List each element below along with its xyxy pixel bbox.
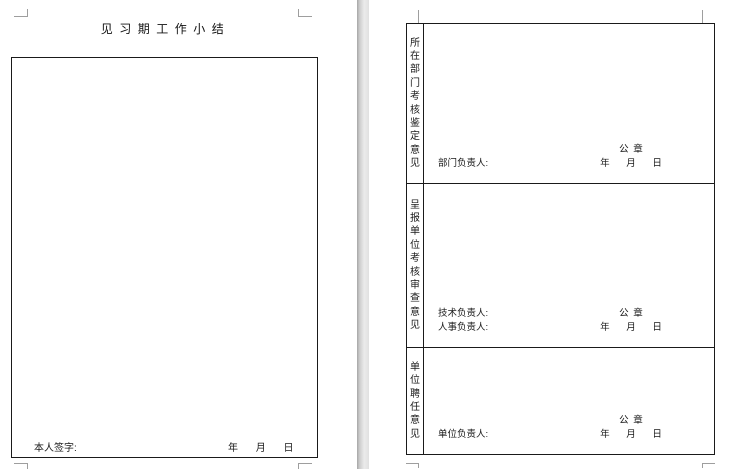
seal-line: 公 章 xyxy=(424,141,714,155)
signature-area: 公 章 单位负责人: 年 月 日 xyxy=(424,412,714,440)
official-seal-label[interactable]: 公 章 xyxy=(584,141,678,155)
self-signature-label[interactable]: 本人签字: xyxy=(34,439,77,454)
work-summary-text-box[interactable]: 本人签字: 年 月 日 xyxy=(11,57,318,458)
row-label-department-assessment[interactable]: 所在部门考核鉴定意见 xyxy=(407,24,424,183)
margin-mark-bottom-right xyxy=(702,463,715,468)
signature-area: 公 章 部门负责人: 年 月 日 xyxy=(424,141,714,169)
row-content-unit-appointment[interactable]: 公 章 单位负责人: 年 月 日 xyxy=(424,348,714,454)
seal-line: 技术负责人: 公 章 xyxy=(424,305,714,319)
signature-area: 技术负责人: 公 章 人事负责人: 年 月 日 xyxy=(424,305,714,333)
date-label[interactable]: 年 月 日 xyxy=(584,426,678,440)
date-label[interactable]: 年 月 日 xyxy=(584,319,678,333)
document-title[interactable]: 见习期工作小结 xyxy=(27,20,298,36)
signature-date-line[interactable]: 年 月 日 xyxy=(228,439,294,454)
person-label[interactable]: 部门负责人: xyxy=(438,155,488,169)
margin-mark-bottom-right xyxy=(298,463,312,469)
row-label-unit-review[interactable]: 呈报单位考核审查意见 xyxy=(407,184,424,347)
page-2: 所在部门考核鉴定意见 公 章 部门负责人: 年 月 日 xyxy=(369,0,730,469)
official-seal-label[interactable]: 公 章 xyxy=(584,412,678,426)
margin-mark-top-right xyxy=(298,9,312,17)
row-content-unit-review[interactable]: 技术负责人: 公 章 人事负责人: 年 月 日 xyxy=(424,184,714,347)
assessment-table: 所在部门考核鉴定意见 公 章 部门负责人: 年 月 日 xyxy=(406,23,715,455)
margin-mark-top-right xyxy=(702,10,704,23)
seal-line: 公 章 xyxy=(424,412,714,426)
date-line: 单位负责人: 年 月 日 xyxy=(424,426,714,440)
table-row-department-assessment: 所在部门考核鉴定意见 公 章 部门负责人: 年 月 日 xyxy=(407,24,714,184)
page-1: 见习期工作小结 本人签字: 年 月 日 xyxy=(0,0,357,469)
table-row-unit-appointment: 单位聘任意见 公 章 单位负责人: 年 月 日 xyxy=(407,348,714,454)
margin-mark-bottom-left xyxy=(406,463,419,468)
person-label[interactable]: 单位负责人: xyxy=(438,426,488,440)
margin-mark-top-left xyxy=(14,9,28,17)
official-seal-label[interactable]: 公 章 xyxy=(584,305,678,319)
margin-mark-bottom-left xyxy=(14,463,28,469)
person-label[interactable]: 人事负责人: xyxy=(438,319,488,333)
word-processor-canvas: 见习期工作小结 本人签字: 年 月 日 所在部门考核鉴定意见 公 章 xyxy=(0,0,730,469)
table-row-unit-review: 呈报单位考核审查意见 技术负责人: 公 章 人事负责人: 年 月 日 xyxy=(407,184,714,348)
page-gap xyxy=(357,0,369,469)
date-label[interactable]: 年 月 日 xyxy=(584,155,678,169)
date-line: 部门负责人: 年 月 日 xyxy=(424,155,714,169)
date-line: 人事负责人: 年 月 日 xyxy=(424,319,714,333)
person-label[interactable]: 技术负责人: xyxy=(438,305,488,319)
margin-mark-top-left xyxy=(418,10,420,23)
row-content-department-assessment[interactable]: 公 章 部门负责人: 年 月 日 xyxy=(424,24,714,183)
row-label-unit-appointment[interactable]: 单位聘任意见 xyxy=(407,348,424,454)
